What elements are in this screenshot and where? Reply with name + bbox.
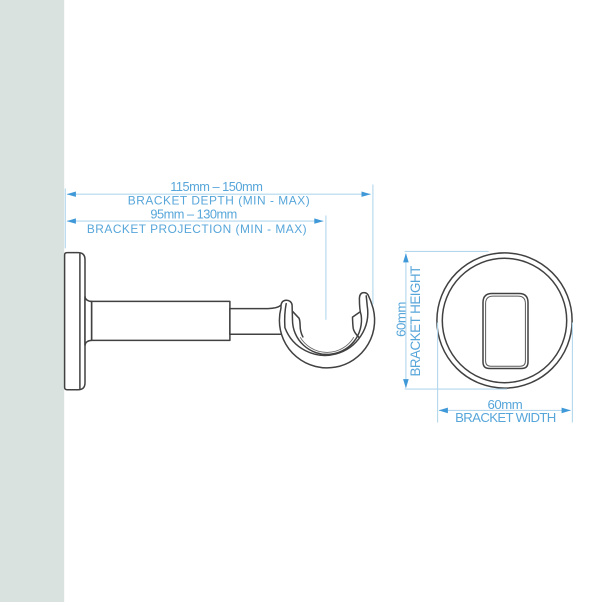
- svg-text:60mm: 60mm: [394, 302, 409, 337]
- svg-text:BRACKET HEIGHT: BRACKET HEIGHT: [408, 266, 423, 377]
- svg-text:BRACKET DEPTH (MIN - MAX): BRACKET DEPTH (MIN - MAX): [128, 194, 310, 208]
- svg-text:115mm – 150mm: 115mm – 150mm: [170, 179, 262, 194]
- svg-text:BRACKET WIDTH: BRACKET WIDTH: [455, 410, 556, 425]
- svg-text:BRACKET PROJECTION (MIN - MAX): BRACKET PROJECTION (MIN - MAX): [87, 222, 307, 236]
- svg-text:95mm – 130mm: 95mm – 130mm: [150, 207, 236, 222]
